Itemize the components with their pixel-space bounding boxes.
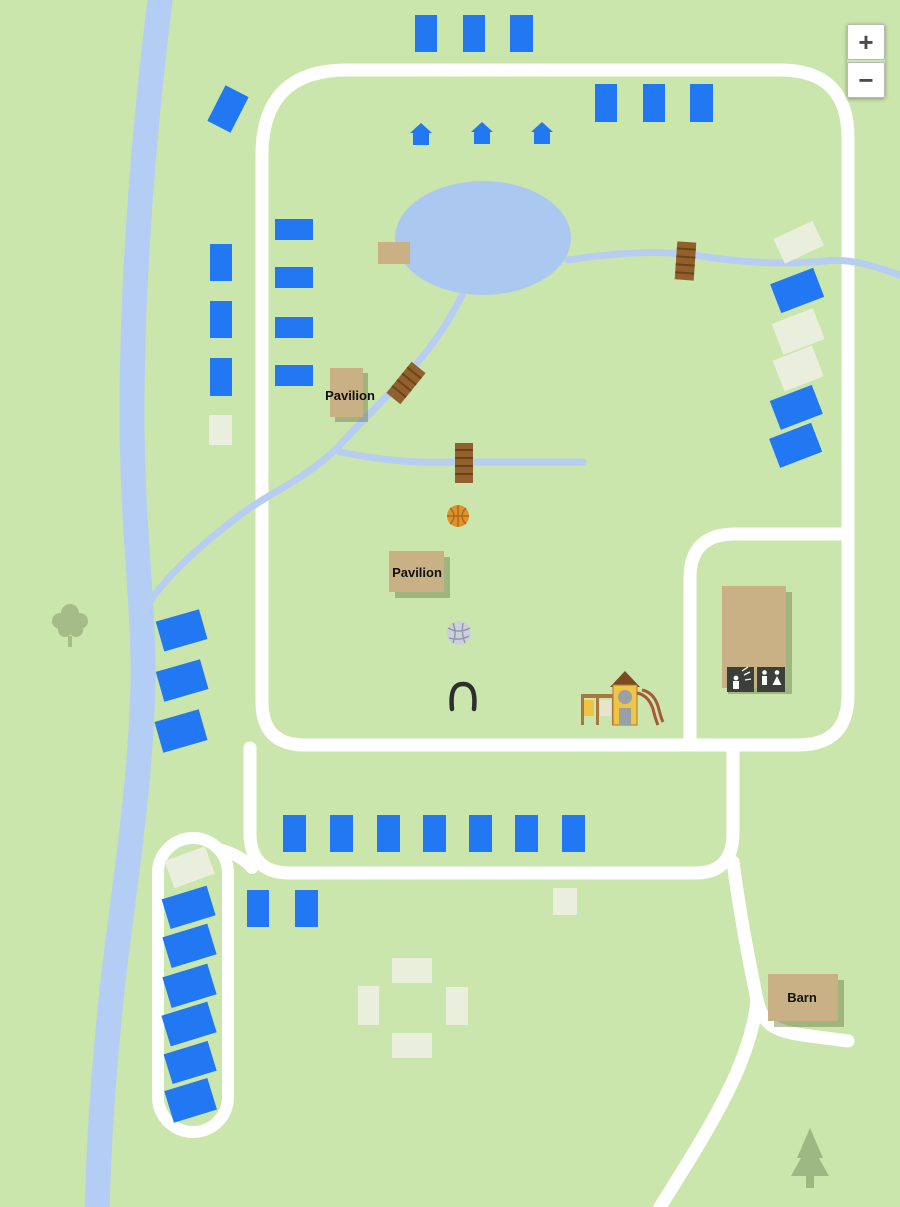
group-area-site <box>392 958 432 983</box>
basketball-icon <box>447 505 469 527</box>
campsite-marker <box>463 15 485 52</box>
campsite-marker <box>469 815 492 852</box>
campsite-marker <box>330 815 353 852</box>
map-zoom-controls: + − <box>847 24 885 98</box>
campsite-marker <box>510 15 533 52</box>
campsite-marker <box>515 815 538 852</box>
campsite-marker <box>295 890 318 927</box>
campsite-marker <box>247 890 269 927</box>
shower-icon <box>727 667 754 692</box>
bridge-icon <box>675 241 697 280</box>
group-area-site <box>358 986 379 1025</box>
campsite-marker <box>275 365 313 386</box>
bridge-icon <box>455 443 473 483</box>
campsite-marker <box>210 358 232 396</box>
pond <box>395 181 571 295</box>
campground-map: Pavilion Pavilion Barn <box>0 0 900 1207</box>
campsite-marker <box>275 219 313 240</box>
campsite-marker <box>562 815 585 852</box>
campsite-marker <box>210 244 232 281</box>
zoom-in-button[interactable]: + <box>847 24 885 60</box>
group-area-site <box>392 1033 432 1058</box>
campsite-marker <box>690 84 713 122</box>
volleyball-icon <box>447 621 471 645</box>
campsite-marker <box>377 815 400 852</box>
group-area-site <box>446 987 468 1025</box>
pavilion-lower-label: Pavilion <box>392 565 442 580</box>
campsite-marker-light <box>209 415 232 445</box>
barn-label: Barn <box>787 990 817 1005</box>
zoom-out-button[interactable]: − <box>847 62 885 98</box>
pavilion-upper-label: Pavilion <box>325 388 375 403</box>
campsite-marker <box>415 15 437 52</box>
campsite-marker <box>275 317 313 338</box>
campsite-marker <box>643 84 665 122</box>
campsite-marker <box>210 301 232 338</box>
campsite-marker <box>423 815 446 852</box>
campsite-marker-light <box>553 888 577 915</box>
restroom-icon <box>757 667 785 692</box>
dock <box>378 242 410 264</box>
campsite-marker <box>275 267 313 288</box>
campsite-marker <box>595 84 617 122</box>
campsite-marker <box>283 815 306 852</box>
